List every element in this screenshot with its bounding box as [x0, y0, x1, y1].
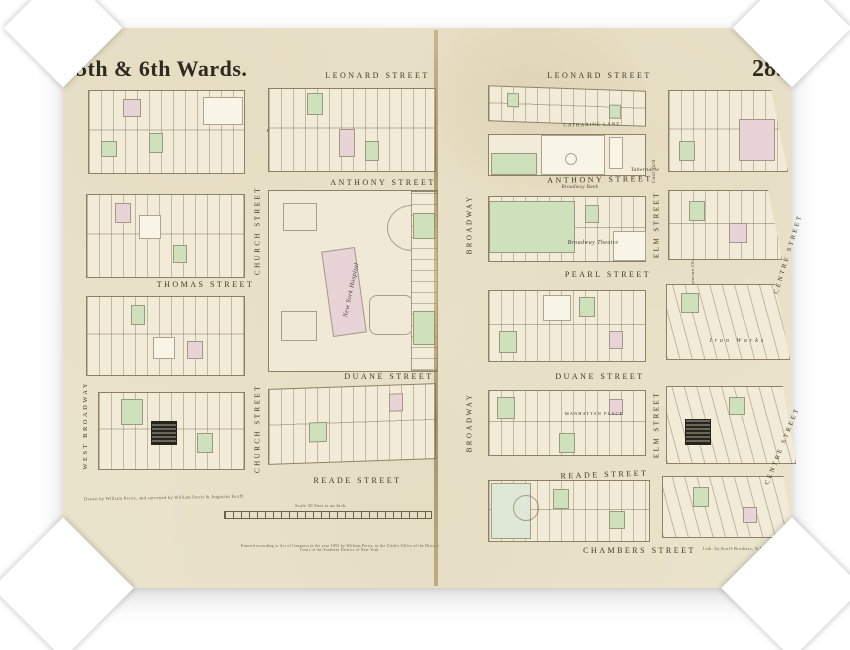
street-label-broadway-upper: BROADWAY	[467, 175, 474, 275]
city-block	[488, 85, 646, 127]
parcel	[681, 293, 699, 313]
parcel	[121, 399, 143, 425]
parcel	[559, 433, 575, 453]
parcel	[693, 487, 709, 507]
parcel	[309, 422, 327, 443]
parcel	[339, 129, 355, 157]
city-block	[668, 90, 788, 172]
parcel	[307, 93, 323, 115]
street-label-leonard-right: LEONARD STREET	[537, 72, 662, 80]
parcel	[609, 511, 625, 529]
city-block	[488, 290, 646, 362]
street-label-thomas: THOMAS STREET	[148, 281, 263, 289]
parcel	[689, 201, 705, 221]
parcel	[729, 223, 747, 243]
gas-holder-circle	[513, 495, 539, 521]
building-label-broadway-bank: Broadway Bank	[555, 185, 605, 192]
street-label-elm-upper: ELM STREET	[654, 170, 661, 280]
parcel	[123, 99, 141, 117]
parcel	[609, 331, 623, 349]
hatched-parcel	[685, 419, 711, 445]
city-block	[88, 90, 245, 174]
parcel	[153, 337, 175, 359]
street-label-manhattan-place: MANHATTAN PLACE	[558, 412, 630, 417]
city-block	[86, 296, 245, 376]
building-label-tabernacle: Tabernacle	[615, 167, 675, 174]
lith-credit: Lith. by Korff Brothers, N.Y.	[703, 546, 764, 551]
outbuilding	[283, 203, 317, 231]
street-label-church-upper: CHURCH STREET	[255, 171, 262, 291]
surveyor-credit: Drawn by William Perris, and surveyed by…	[84, 494, 245, 502]
parcel	[101, 141, 117, 157]
parcel	[413, 213, 435, 239]
parcel	[579, 297, 595, 317]
parcel	[197, 433, 213, 453]
parcel	[389, 393, 403, 411]
street-label-chambers: CHAMBERS STREET	[567, 547, 712, 555]
street-label-church-lower: CHURCH STREET	[255, 369, 262, 489]
parcel	[131, 305, 145, 325]
scale-label: Scale 50 Feet to an Inch.	[295, 503, 347, 508]
parcel	[413, 311, 435, 345]
city-block	[488, 390, 646, 456]
parcel	[139, 215, 161, 239]
hatched-parcel	[151, 421, 177, 445]
outbuilding	[281, 311, 317, 341]
parcel	[679, 141, 695, 161]
parcel	[507, 93, 519, 107]
street-label-pearl: PEARL STREET	[553, 271, 663, 279]
street-label-anthony-left: ANTHONY STREET	[318, 179, 448, 187]
scale-bar	[224, 511, 432, 519]
parcel	[743, 507, 757, 523]
theatre-block	[488, 196, 646, 262]
page-title: 5th & 6th Wards.	[76, 56, 247, 82]
parcel	[365, 141, 379, 161]
street-label-west-broadway: WEST BROADWAY	[83, 370, 90, 480]
parcel	[553, 489, 569, 509]
street-label-duane-left: DUANE STREET	[333, 373, 445, 381]
street-label-broadway-lower: BROADWAY	[467, 373, 474, 473]
parcel	[187, 341, 203, 359]
city-block	[86, 194, 245, 278]
city-block	[662, 476, 794, 538]
city-block	[668, 190, 782, 260]
building-label-iron-works: Iron Works	[705, 338, 771, 346]
church-parcel	[203, 97, 243, 125]
outbuilding	[369, 295, 413, 335]
parcel	[609, 104, 621, 118]
city-block	[488, 480, 650, 542]
parcel	[585, 205, 599, 223]
street-label-leonard-left: LEONARD STREET	[315, 72, 440, 80]
map-sheet: Episcopal Church	[63, 28, 792, 588]
photo-backdrop: Episcopal Church	[0, 0, 850, 650]
street-label-elm-lower: ELM STREET	[654, 370, 661, 480]
dome-outline	[565, 153, 577, 165]
parcel	[497, 397, 515, 419]
parcel	[115, 203, 131, 223]
iron-works-block	[666, 284, 790, 360]
bank-parcel	[491, 153, 537, 175]
city-block	[98, 392, 245, 470]
parcel	[729, 397, 745, 415]
city-block	[268, 383, 436, 465]
parcel	[543, 295, 571, 321]
parcel	[149, 133, 163, 153]
street-label-duane-right: DUANE STREET	[544, 373, 656, 381]
building-label-broadway-theatre: Broadway Theatre	[551, 240, 635, 248]
church-parcel	[739, 119, 775, 161]
city-block	[268, 88, 436, 172]
parcel	[173, 245, 187, 263]
coal-yard-parcel	[609, 137, 623, 169]
parcel	[499, 331, 517, 353]
center-fold	[434, 30, 438, 586]
copyright-line: Entered according to Act of Congress in …	[240, 544, 440, 552]
street-label-reade-left: READE STREET	[300, 477, 415, 485]
